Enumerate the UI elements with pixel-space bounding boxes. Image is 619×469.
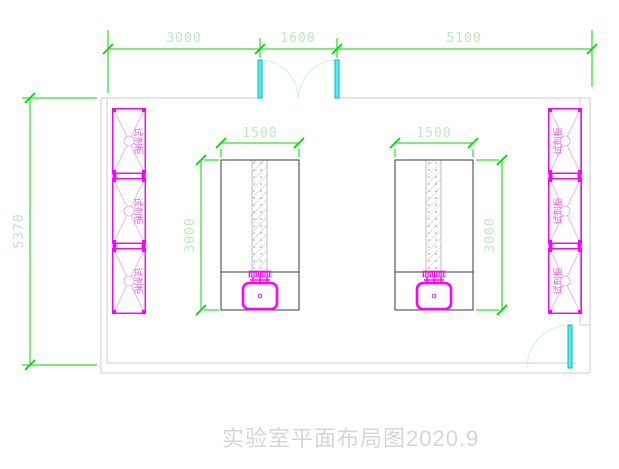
cabinet-label: 试剂柜 bbox=[553, 191, 565, 231]
cabinet-label: 试剂柜 bbox=[131, 191, 143, 231]
dim-label-bench1-depth: 3000 bbox=[184, 205, 198, 265]
dim-label-left-height: 5370 bbox=[13, 201, 27, 261]
cabinet-label: 试剂柜 bbox=[553, 121, 565, 161]
dim-label-bench2-width: 1500 bbox=[404, 127, 464, 141]
dim-label-bench2-depth: 3000 bbox=[484, 205, 498, 265]
dim-label-top-middle: 1600 bbox=[268, 32, 328, 46]
floorplan-drawing bbox=[0, 0, 619, 469]
drawing-title: 实验室平面布局图2020.9 bbox=[222, 421, 482, 453]
cabinet-label: 试剂柜 bbox=[131, 261, 143, 301]
cabinet-label: 试剂柜 bbox=[131, 121, 143, 161]
dim-label-bench1-width: 1500 bbox=[230, 127, 290, 141]
dim-label-top-left: 3000 bbox=[154, 32, 214, 46]
cabinet-label: 试剂柜 bbox=[553, 261, 565, 301]
floor-plan-canvas: 3000 1600 5100 5370 1500 3000 1500 3000 … bbox=[0, 0, 619, 469]
dim-label-top-right: 5100 bbox=[434, 32, 494, 46]
